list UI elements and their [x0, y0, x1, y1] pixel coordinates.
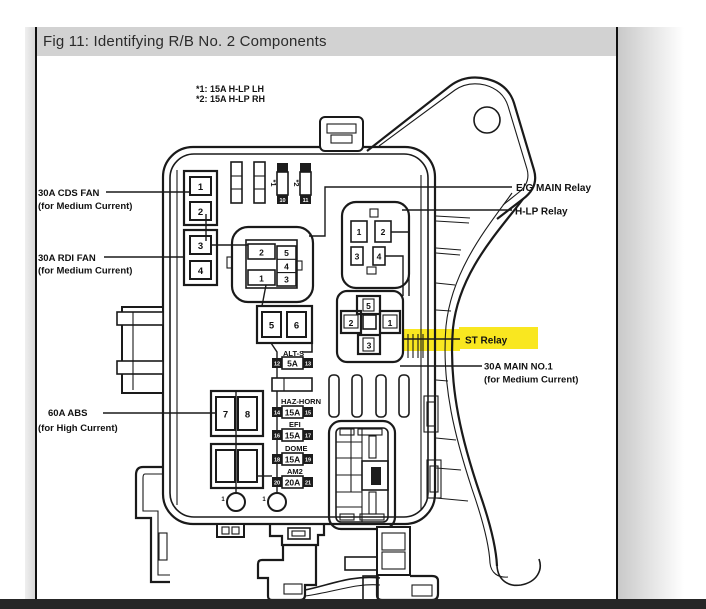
foot-bar: [345, 557, 377, 570]
pin-number: 11: [303, 198, 309, 204]
hlp-relay-label: H-LP Relay: [515, 207, 568, 218]
foot-outline: [136, 467, 170, 582]
screw-number: 1: [221, 497, 225, 503]
top-mount-tab: [320, 117, 363, 151]
bottom-right-foot: [345, 527, 438, 600]
pin-number: 10: [279, 198, 285, 204]
eg-main-leader: [309, 187, 512, 236]
footnote-2: *2: 15A H-LP RH: [196, 94, 265, 104]
terminal-number: 4: [284, 261, 289, 271]
footnote-marker-2: *2: [292, 179, 301, 186]
tab: [217, 524, 244, 537]
fuse-name: EFI: [289, 420, 301, 429]
st-relay: 5 2 1 3: [337, 291, 403, 362]
terminal-number: 2: [259, 248, 264, 258]
slot-number: 3: [198, 241, 203, 252]
relay-key-tab: [367, 267, 376, 274]
empty-fuse-slot: [272, 378, 312, 391]
pin-number: 2: [381, 227, 386, 237]
rib: [436, 253, 460, 255]
abs-sublabel: (for High Current): [38, 423, 118, 434]
pin-number: 14: [274, 411, 281, 417]
tab-body: [320, 117, 363, 151]
fuse-amps: 15A: [285, 431, 301, 441]
slot-number: 1: [198, 182, 204, 193]
sweep-hook: [497, 559, 540, 585]
slot: [376, 375, 386, 417]
fuse-column: ALT-S 12 5A 13 HAZ-HORN 14 15A 15: [271, 343, 321, 493]
right-wall-ribs: [408, 216, 470, 501]
fuse-slot: [254, 162, 265, 203]
pin-number: 15: [305, 411, 311, 417]
fuse-amps: 5A: [287, 359, 298, 369]
bottom-connector: [329, 421, 395, 529]
slot: [352, 375, 362, 417]
main-no1-label: 30A MAIN NO.1: [484, 362, 554, 373]
bracket-bar: [117, 312, 163, 325]
footnote-marker-1: *1: [269, 179, 278, 186]
rib: [436, 438, 456, 440]
pin-number: 5: [366, 301, 371, 311]
fuse-row-haz-horn: HAZ-HORN 14 15A 15: [272, 397, 321, 418]
slot-number: 7: [223, 410, 228, 421]
rib: [436, 248, 461, 250]
pin-number: 12: [274, 362, 280, 368]
fuse-row-dome: DOME 18 15A 19: [272, 444, 313, 465]
relay-key-tab: [370, 209, 378, 217]
cds-fan-sublabel: (for Medium Current): [38, 201, 132, 212]
pin-number: 3: [355, 252, 360, 262]
slot-number: 4: [198, 266, 204, 277]
figure-page: Fig 11: Identifying R/B No. 2 Components: [0, 0, 706, 609]
right-edge-sweep: [445, 193, 540, 585]
cds-fan-fuse-block: 1 2: [184, 171, 217, 225]
slot-number: 8: [245, 410, 250, 421]
ground-screw: [227, 493, 245, 511]
fuse-name: DOME: [285, 444, 308, 453]
fuse-amps: 20A: [285, 478, 301, 488]
eg-main-relay-label: E/G MAIN Relay: [516, 183, 591, 194]
bracket-bar: [117, 361, 163, 374]
fuse-name: HAZ-HORN: [281, 397, 321, 406]
slot: [369, 436, 376, 458]
pin-number: 13: [305, 362, 311, 368]
top-right-bracket: [367, 78, 535, 219]
pin-number: 1: [388, 318, 393, 328]
top-fuse-row: 10 11 *1 *2: [231, 162, 311, 204]
fuse-slot: [216, 450, 235, 482]
rib: [436, 468, 461, 470]
stepped-tab: [270, 524, 324, 545]
pin-number: 19: [305, 458, 311, 464]
slot: [399, 375, 409, 417]
pin-number: 20: [274, 481, 280, 487]
relay-housing: [342, 202, 409, 288]
terminal-number: 1: [259, 274, 264, 284]
rdi-fan-label: 30A RDI FAN: [38, 253, 96, 264]
bottom-tabs: [217, 524, 380, 600]
pin-number: 21: [305, 481, 311, 487]
foot-slot: [159, 533, 167, 560]
fuse-row-efi: EFI 16 15A 17: [272, 420, 313, 441]
fusebox-diagram: 1 2 3 4 10: [0, 0, 706, 609]
terminal-number: 5: [284, 248, 289, 258]
abs-label: 60A ABS: [48, 408, 87, 419]
eg-main-relay-connector: 2 1 5 4 3: [227, 227, 313, 302]
slot: [340, 429, 354, 435]
page-bottom-rule: [0, 599, 706, 609]
foot-link-curve: [305, 585, 380, 596]
left-bracket: [117, 307, 163, 393]
latch-slot: [371, 467, 381, 485]
hlp-relay: 1 2 3 4: [342, 202, 409, 296]
fuse-row-am2: AM2 20 20A 21: [272, 467, 313, 488]
slot-number: 2: [198, 207, 203, 218]
connector-housing: [232, 227, 313, 302]
pin-number: 4: [377, 252, 382, 262]
slot-number: 6: [294, 321, 299, 332]
pin-number: 16: [274, 434, 280, 440]
rdi-fan-sublabel: (for Medium Current): [38, 266, 132, 277]
screw-number: 1: [262, 497, 266, 503]
ground-screw: [268, 493, 286, 511]
fuse-slot: [238, 450, 257, 482]
left-foot: [136, 467, 170, 582]
st-relay-label: ST Relay: [465, 336, 508, 347]
fuse-amps: 15A: [285, 455, 301, 465]
rib: [436, 216, 470, 218]
cds-fan-label: 30A CDS FAN: [38, 188, 100, 199]
pin-number: 17: [305, 434, 311, 440]
bolt-hole: [474, 107, 500, 133]
pin-number: 1: [357, 227, 362, 237]
slot: [329, 375, 339, 417]
pin-number: 2: [349, 318, 354, 328]
terminal-number: 3: [284, 275, 289, 285]
relay-center-key: [363, 315, 376, 329]
pin-number: 3: [367, 341, 372, 351]
fuse-slot: [231, 162, 242, 203]
slot-5-6-block: 5 6: [257, 306, 312, 352]
main-no1-slot-row: [329, 375, 409, 417]
slot-number: 5: [269, 321, 275, 332]
foot-post: [363, 576, 378, 600]
rib: [436, 283, 455, 285]
fuse-name: AM2: [287, 467, 303, 476]
center-foot: [258, 545, 316, 600]
footnote-1: *1: 15A H-LP LH: [196, 84, 264, 94]
rib: [436, 221, 469, 223]
pin-number: 18: [274, 458, 280, 464]
slot: [369, 492, 376, 514]
rdi-fan-fuse-block: 3 4: [184, 230, 217, 285]
bracket-outer-edge: [367, 78, 535, 219]
fuse-amps: 15A: [285, 408, 301, 418]
main-no1-sublabel: (for Medium Current): [484, 375, 578, 386]
